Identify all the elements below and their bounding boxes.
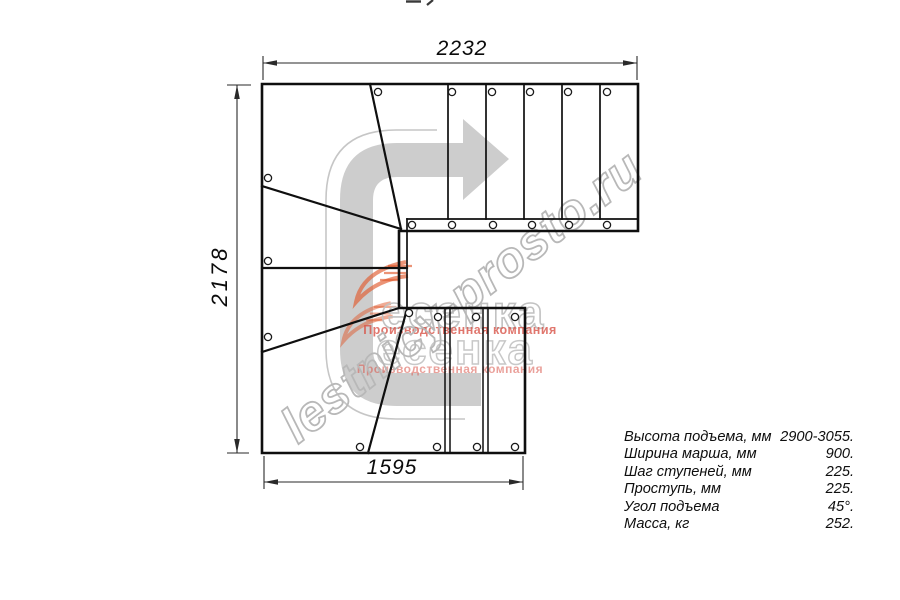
screw-hole	[472, 313, 479, 320]
screw-hole	[526, 88, 533, 95]
spec-value: 2900-3055.	[780, 429, 854, 446]
screw-hole	[374, 88, 381, 95]
screw-hole	[264, 174, 271, 181]
screw-hole	[264, 257, 271, 264]
cropped-top-fragments	[406, 0, 433, 5]
staircase-plan-drawing: есенка есенка Производственная компания …	[0, 0, 900, 600]
spec-row-mass: Масса, кг 252.	[624, 516, 854, 533]
spec-value: 252.	[826, 516, 854, 533]
spec-row-rise-height: Высота подъема, мм 2900-3055.	[624, 429, 854, 446]
screw-hole	[564, 88, 571, 95]
screw-hole	[489, 221, 496, 228]
screw-hole	[603, 221, 610, 228]
dimension-value-left: 2178	[207, 246, 233, 307]
spec-value: 225.	[826, 481, 854, 498]
screw-hole	[264, 333, 271, 340]
screw-hole	[434, 313, 441, 320]
spec-table: Высота подъема, мм 2900-3055. Ширина мар…	[624, 429, 854, 533]
spec-label: Высота подъема, мм	[624, 429, 772, 446]
dimension-value-top: 2232	[437, 37, 488, 61]
screw-hole	[511, 443, 518, 450]
screw-hole	[473, 443, 480, 450]
url-watermark: lestnicy-prosto.ru	[270, 139, 652, 453]
spec-value: 45°.	[828, 499, 854, 516]
screw-hole	[405, 309, 412, 316]
screw-hole	[511, 313, 518, 320]
spec-row-step-pitch: Шаг ступеней, мм 225.	[624, 464, 854, 481]
spec-value: 900.	[826, 446, 854, 463]
spec-label: Масса, кг	[624, 516, 689, 533]
spec-row-tread: Проступь, мм 225.	[624, 481, 854, 498]
spec-label: Проступь, мм	[624, 481, 721, 498]
screw-hole	[448, 88, 455, 95]
spec-label: Ширина марша, мм	[624, 446, 757, 463]
spec-label: Угол подъема	[624, 499, 719, 516]
spec-value: 225.	[826, 464, 854, 481]
screw-hole	[408, 221, 415, 228]
spec-label: Шаг ступеней, мм	[624, 464, 752, 481]
dimension-value-bottom: 1595	[367, 456, 418, 480]
screw-hole	[448, 221, 455, 228]
screw-hole	[433, 443, 440, 450]
screw-hole	[603, 88, 610, 95]
screw-hole	[565, 221, 572, 228]
screw-hole	[528, 221, 535, 228]
spec-row-flight-width: Ширина марша, мм 900.	[624, 446, 854, 463]
screw-hole	[356, 443, 363, 450]
screw-hole	[488, 88, 495, 95]
spec-row-climb-angle: Угол подъема 45°.	[624, 499, 854, 516]
watermark-layer: есенка есенка Производственная компания …	[270, 119, 652, 453]
